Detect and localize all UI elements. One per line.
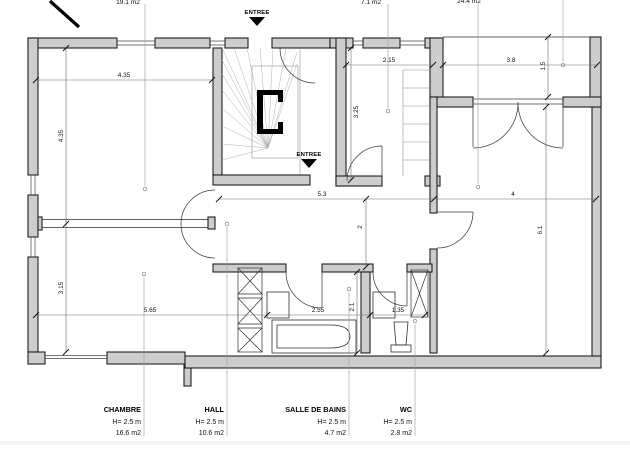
dim-terrace-height: 1.5 <box>540 61 547 70</box>
dim-bath-width: 2.55 <box>312 307 325 314</box>
dim-hall-width: 5.3 <box>318 191 327 198</box>
room-name: CHAMBRE <box>104 405 141 414</box>
closet-shelves <box>403 70 430 176</box>
floor-plan-page: 4.35 4.35 3.15 5.65 2.55 2.1 1.35 2.15 3… <box>0 0 630 450</box>
room-area: 2.8 m2 <box>391 430 413 437</box>
scan-artifact <box>0 441 630 445</box>
dim-big-room-height: 6.1 <box>537 225 544 234</box>
french-doors <box>473 99 563 148</box>
dim-chambre-width: 5.65 <box>144 307 157 314</box>
dim-chambre-height: 3.15 <box>58 281 65 294</box>
room-label-chambre: CHAMBRE H= 2.5 m 16.6 m2 <box>104 405 141 437</box>
washbasin-wc <box>373 292 395 318</box>
bathtub <box>272 320 356 353</box>
room-label-hall: HALL H= 2.5 m 10.6 m2 <box>195 405 224 437</box>
room-name: HALL <box>205 405 225 414</box>
entree-arrow-icon <box>301 159 317 168</box>
area-label-room-mid: 7.1 m2 <box>361 0 381 6</box>
room-height: H= 2.5 m <box>195 419 224 426</box>
area-label-room-tl: 19.1 m2 <box>116 0 140 6</box>
staircase <box>222 48 300 175</box>
top-area-labels: 19.1 m2 7.1 m2 24.4 m2 <box>116 0 481 6</box>
room-height: H= 2.5 m <box>383 419 412 426</box>
room-name: WC <box>400 405 413 414</box>
dim-big-room-width: 4 <box>511 191 515 198</box>
north-arrow-fragment <box>50 1 79 27</box>
room-area: 4.7 m2 <box>325 430 347 437</box>
entree-label: ENTREE <box>296 152 321 158</box>
room-label-wc: WC H= 2.5 m 2.8 m2 <box>383 405 412 437</box>
dim-mid-room-width: 2.15 <box>383 57 396 64</box>
bathroom-door-arc <box>286 272 322 308</box>
entrance-marker-top: ENTREE <box>244 10 269 26</box>
dim-bath-height: 2.1 <box>349 302 356 311</box>
washbasin-bathroom <box>267 292 289 318</box>
dim-mid-room-height: 3.25 <box>353 105 360 118</box>
dim-room-tl-width: 4.35 <box>118 72 131 79</box>
leader-lines <box>142 0 565 436</box>
duct-column-left <box>238 268 262 352</box>
area-label-room-right: 24.4 m2 <box>457 0 481 5</box>
big-room-door-arc <box>437 212 473 248</box>
wc-door-arc <box>373 272 407 306</box>
entree-label: ENTREE <box>244 10 269 16</box>
dim-hall-height: 2 <box>357 225 364 229</box>
duct-column-right <box>411 270 428 317</box>
dim-terrace-width: 3.8 <box>507 57 516 64</box>
room-height: H= 2.5 m <box>317 419 346 426</box>
entree-arrow-icon <box>249 17 265 26</box>
room-area: 16.6 m2 <box>116 430 141 437</box>
floor-plan-drawing: 4.35 4.35 3.15 5.65 2.55 2.1 1.35 2.15 3… <box>0 0 630 450</box>
room-label-sdb: SALLE DE BAINS H= 2.5 m 4.7 m2 <box>285 405 346 437</box>
room-name: SALLE DE BAINS <box>285 405 346 414</box>
room-area: 10.6 m2 <box>199 430 224 437</box>
dim-wc-width: 1.35 <box>392 307 405 314</box>
toilet <box>391 322 411 352</box>
dim-room-tl-height: 4.35 <box>58 129 65 142</box>
room-height: H= 2.5 m <box>112 419 141 426</box>
walls <box>28 37 601 386</box>
